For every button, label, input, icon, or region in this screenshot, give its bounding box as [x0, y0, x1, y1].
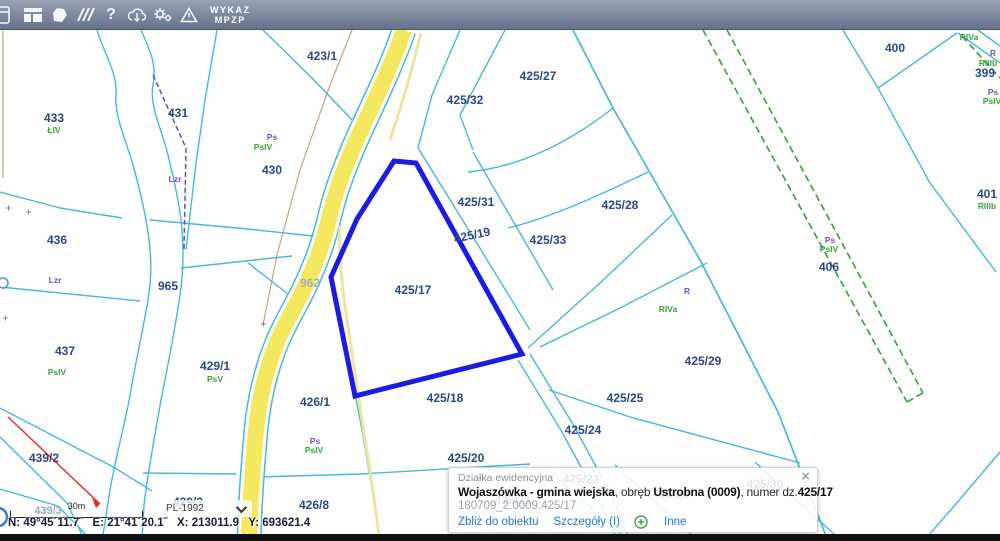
scale-bar: 30m: [10, 501, 143, 518]
parcel-number-label: 437: [55, 344, 75, 358]
soil-class-label: Ps: [267, 132, 278, 142]
parcel-number-label: 426/8: [299, 498, 329, 512]
layout-panels-icon[interactable]: [20, 3, 46, 27]
parcel-number-label: 425/18: [427, 391, 464, 405]
soil-class-label: PsIV: [305, 445, 324, 455]
close-icon[interactable]: ×: [801, 470, 810, 484]
details-link[interactable]: Szczegóły (I): [554, 516, 620, 528]
gis-app-window: 423/1433ŁIV431PsPsIV430436LzrLzr96596243…: [0, 0, 1000, 541]
scale-bar-label: 30m: [10, 501, 143, 511]
projection-selector[interactable]: PL-1992: [152, 500, 252, 517]
parcel-number-label: 406: [819, 260, 839, 274]
parcel-number-label: 425/31: [458, 195, 495, 209]
soil-class-label: RIVa: [659, 304, 678, 314]
parcel-number-label: 430: [262, 163, 282, 177]
parcel-number-label: 965: [158, 279, 178, 293]
parcel-number-label: 426/1: [300, 395, 330, 409]
soil-class-label: RIVa: [960, 32, 979, 42]
soil-class-label: PsIV: [820, 244, 839, 254]
other-link[interactable]: Inne: [664, 516, 686, 528]
add-plus-icon[interactable]: [634, 515, 648, 529]
parcel-number-label: 962: [300, 276, 320, 290]
window-partial-icon[interactable]: [0, 3, 14, 27]
parcel-number-label: 425/17: [395, 283, 432, 297]
parcel-number-label: 425/28: [602, 198, 639, 212]
parcel-number-label: 425/29: [685, 354, 722, 368]
soil-class-label: R: [990, 48, 996, 58]
locate-marker-circle: [0, 508, 7, 526]
district-name: Ustrobna (0009): [653, 485, 740, 499]
parcel-number-label: 425/24: [565, 423, 602, 437]
popup-title: Działka ewidencyjna: [458, 472, 808, 484]
municipality-name: Wojaszówka - gmina wiejska: [458, 485, 615, 499]
coordinates-readout: N: 49°45´11.7˝ E: 21°41´20.1˝ X: 213011.…: [8, 517, 310, 529]
soil-class-label: ŁIV: [47, 125, 61, 135]
popup-parcel-description: Wojaszówka - gmina wiejska, obręb Ustrob…: [458, 485, 808, 499]
top-toolbar: ? WYKAZ MPZP: [0, 0, 1000, 30]
parcel-number-label: 425/32: [447, 93, 484, 107]
parcel-info-popup: × Działka ewidencyjna Wojaszówka - gmina…: [448, 467, 818, 533]
map-canvas[interactable]: 423/1433ŁIV431PsPsIV430436LzrLzr96596243…: [0, 0, 1000, 541]
parcel-identifier: 180709_2.0009.425/17: [458, 500, 808, 512]
parcel-number: 425/17: [798, 485, 833, 499]
wykaz-mpzp-button[interactable]: WYKAZ MPZP: [210, 5, 251, 25]
parcel-number-label: 399: [975, 66, 995, 80]
parcel-number-label: 423/1: [307, 49, 337, 63]
measure-lines-icon[interactable]: [72, 3, 98, 27]
parcel-number-label: 425/20: [448, 451, 485, 465]
parcel-number-label: 400: [885, 41, 905, 55]
chevron-down-icon: [236, 501, 247, 512]
parcel-number-label: 425/27: [520, 69, 557, 83]
parcel-number-label: 433: [44, 111, 64, 125]
soil-class-label: PsIV: [48, 367, 67, 377]
parcel-number-label: 429/1: [200, 359, 230, 373]
projection-value: PL-1992: [166, 503, 204, 514]
bottom-black-bar: [0, 534, 1000, 541]
parcel-number-label: 439/2: [29, 451, 59, 465]
popup-actions: Zbliż do obiektu Szczegóły (I) Inne: [458, 515, 808, 529]
download-cloud-icon[interactable]: [124, 3, 150, 27]
settings-gears-icon[interactable]: [150, 3, 176, 27]
soil-class-label: Lzr: [49, 275, 62, 285]
map-symbol-circle: [0, 278, 8, 288]
soil-class-label: PsV: [207, 374, 223, 384]
help-icon[interactable]: ?: [98, 3, 124, 27]
parcel-number-label: 425/25: [607, 391, 644, 405]
soil-class-label: Lzr: [169, 174, 182, 184]
parcel-number-label: 431: [168, 106, 188, 120]
parcel-number-label: 436: [47, 233, 67, 247]
warning-icon[interactable]: [176, 3, 202, 27]
soil-class-label: PsIV: [983, 96, 1000, 106]
polygon-select-icon[interactable]: [46, 3, 72, 27]
soil-class-label: R: [684, 286, 690, 296]
zoom-to-object-link[interactable]: Zbliż do obiektu: [458, 516, 539, 528]
parcel-number-label: 425/33: [530, 233, 567, 247]
soil-class-label: RIIIb: [978, 201, 996, 211]
soil-class-label: PsIV: [254, 142, 273, 152]
parcel-number-label: 401: [977, 187, 997, 201]
